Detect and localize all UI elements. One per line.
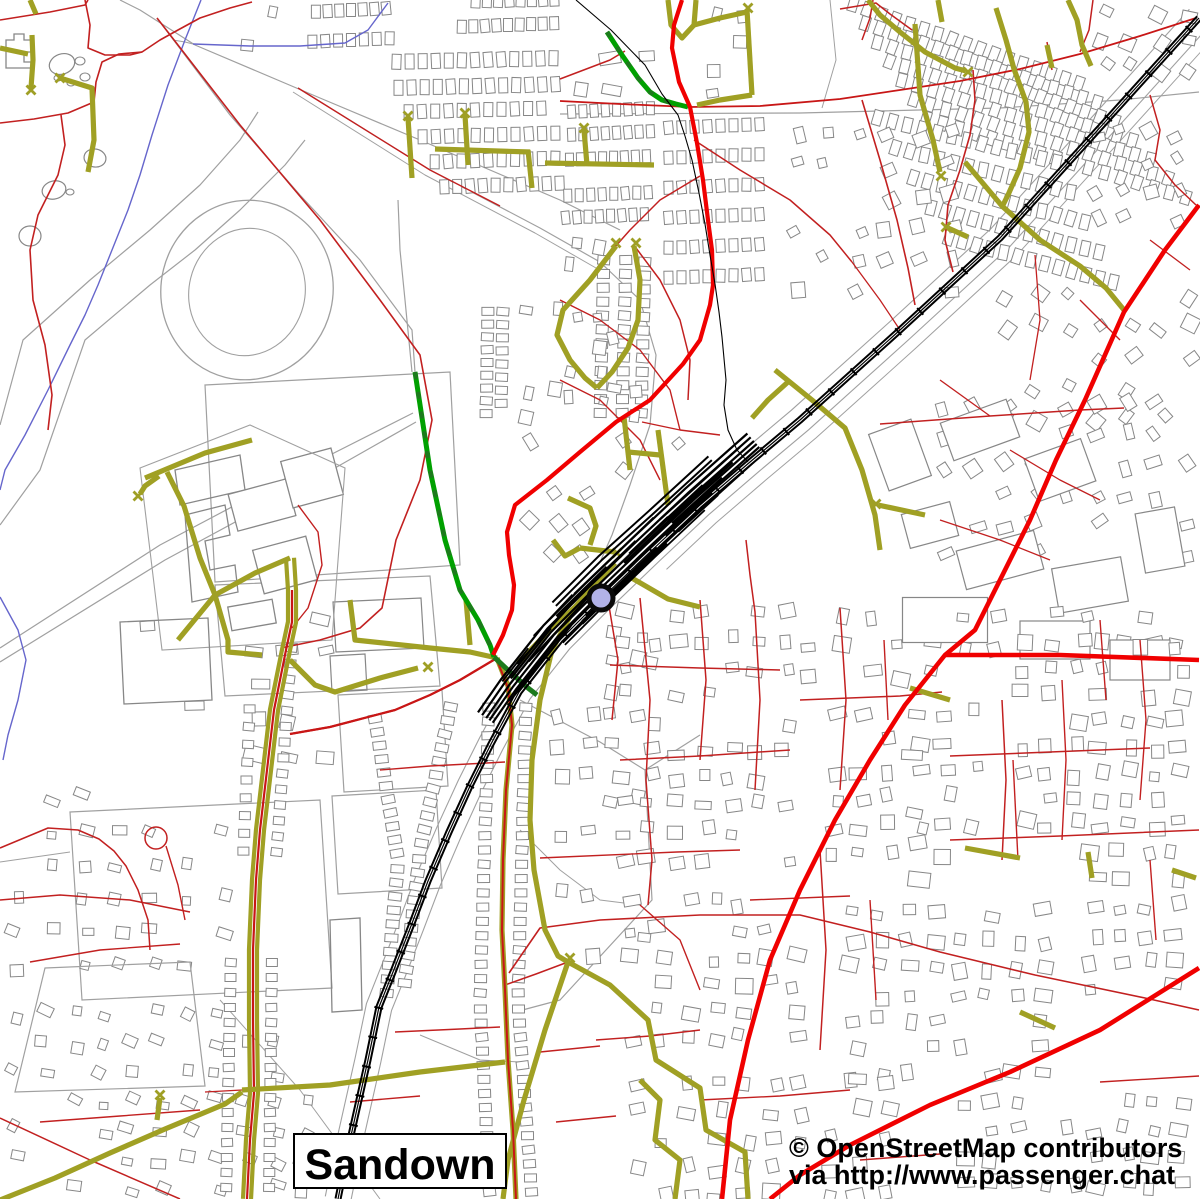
svg-text:Sandown: Sandown: [304, 1141, 495, 1189]
svg-text:via http://www.passenger.chat: via http://www.passenger.chat: [789, 1160, 1175, 1190]
svg-text:© OpenStreetMap contributors: © OpenStreetMap contributors: [789, 1133, 1182, 1163]
